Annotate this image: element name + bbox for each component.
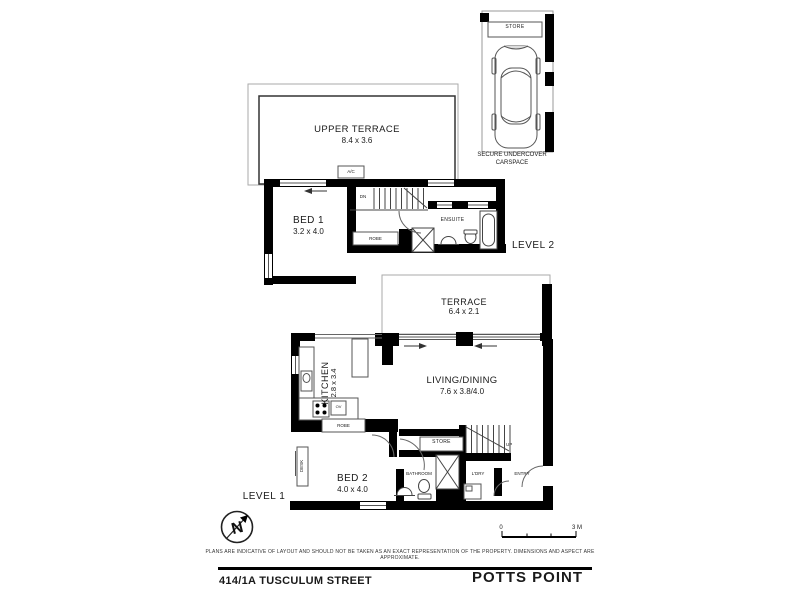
laundry-label: L'DRY (463, 471, 493, 476)
level1-stairs (466, 425, 510, 453)
car-icon (492, 46, 540, 148)
carspace-caption: SECURE UNDERCOVER CARSPACE (466, 152, 558, 167)
property-suburb: POTTS POINT (458, 569, 583, 586)
room-label-terrace: TERRACE 6.4 x 2.1 (404, 297, 524, 317)
scale-end-label: 3 M (566, 525, 588, 532)
oven-label: OV (331, 405, 346, 410)
plan-linework: N (0, 0, 800, 600)
stairs-up-label: UP (506, 442, 524, 447)
room-label-upper-terrace: UPPER TERRACE 8.4 x 3.6 (292, 125, 422, 145)
carspace-caption-line2: CARSPACE (466, 160, 558, 168)
scale-start-label: 0 (496, 525, 506, 532)
room-label-bed1: BED 1 3.2 x 4.0 (266, 215, 351, 236)
basin-icon (441, 237, 456, 244)
floor-plan: N STORE SECURE UNDERCOVER CARSPACE UPPER… (0, 0, 800, 600)
scale-bar (502, 531, 576, 537)
entry-label: ENTRY (504, 471, 540, 476)
store-label-level1: STORE (420, 440, 463, 446)
property-address: 414/1A TUSCULUM STREET (219, 575, 372, 587)
room-label-living: LIVING/DINING 7.6 x 3.8/4.0 (397, 376, 527, 396)
ensuite-label: ENSUITE (425, 218, 480, 224)
north-compass-icon: N (222, 512, 253, 543)
room-label-bed2: BED 2 4.0 x 4.0 (310, 473, 395, 494)
toilet-icon (419, 480, 430, 493)
stairs-dn-label: DN (356, 194, 370, 199)
ac-label: A/C (338, 169, 364, 174)
carspace-caption-line1: SECURE UNDERCOVER (466, 152, 558, 160)
level1-title: LEVEL 1 (234, 491, 294, 503)
level1-door-arrows (404, 343, 497, 349)
carspace-store-label: STORE (488, 25, 542, 31)
robe-label-level2: ROBE (353, 236, 398, 241)
level2-door-arrow (304, 188, 327, 194)
level2-title: LEVEL 2 (512, 240, 582, 252)
bathroom-label: BATHROOM (396, 471, 442, 476)
svg-text:N: N (230, 519, 245, 538)
disclaimer-text: PLANS ARE INDICATIVE OF LAYOUT AND SHOUL… (205, 549, 595, 561)
robe-label-level1: ROBE (322, 423, 365, 428)
room-label-kitchen: KITCHEN 2.8 x 3.4 (296, 348, 362, 418)
